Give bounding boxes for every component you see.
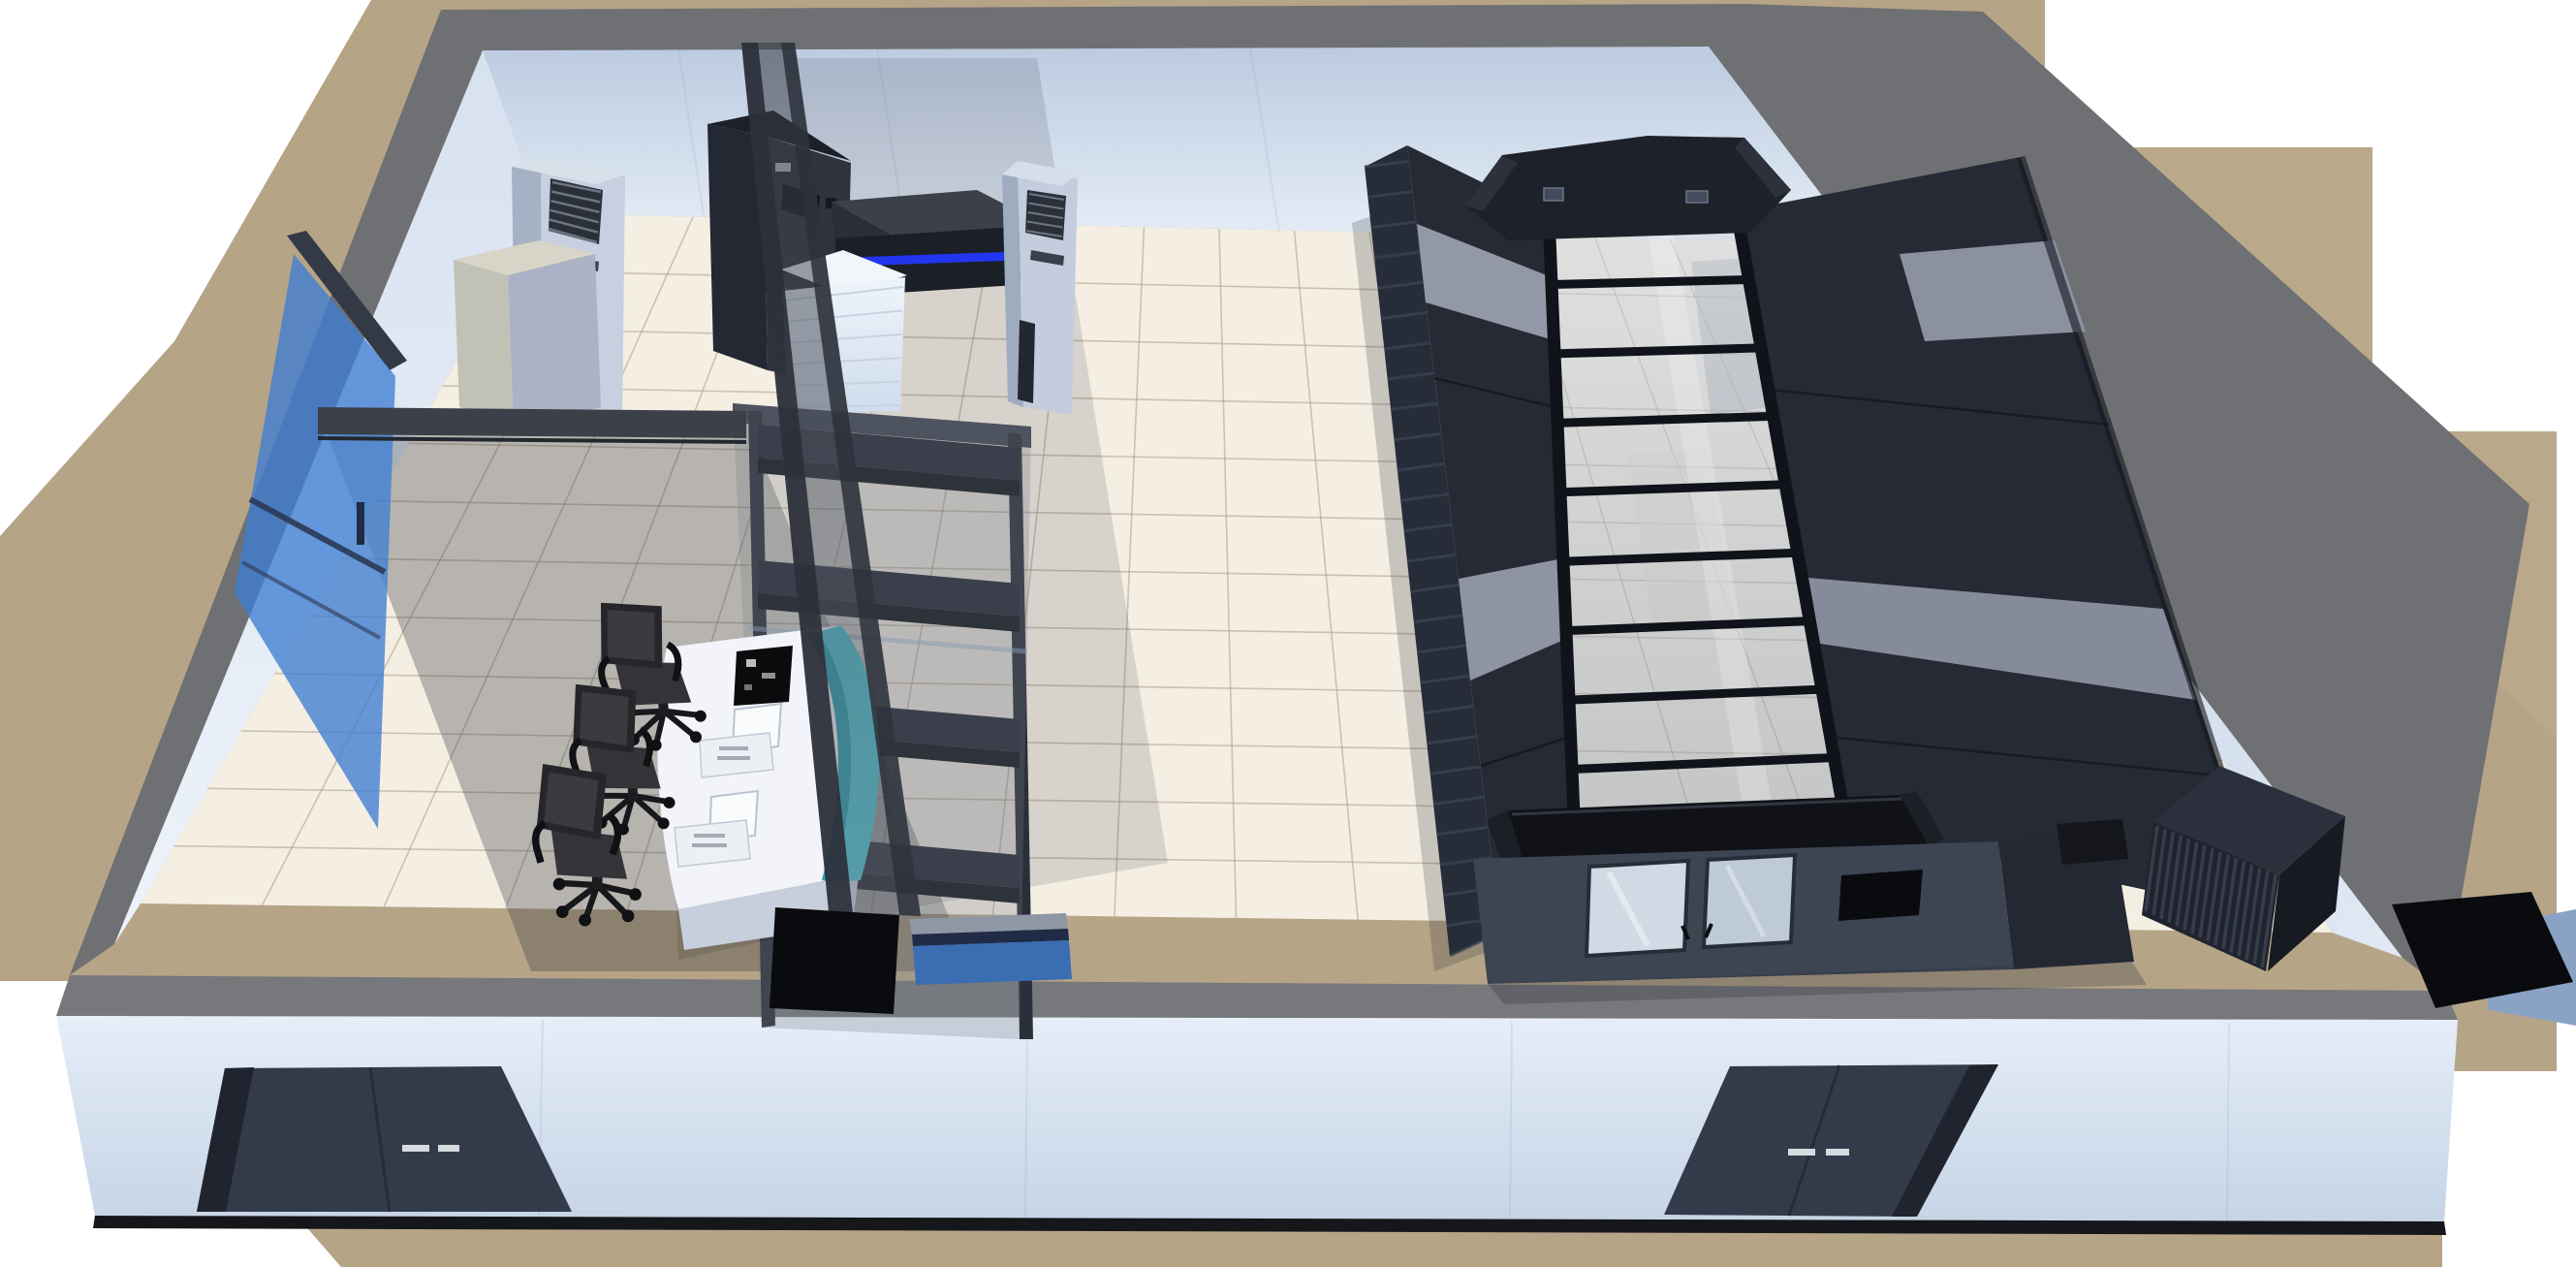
door-handle[interactable] — [438, 1145, 459, 1152]
aisle-side-panel — [2057, 819, 2128, 865]
keyboard-keys — [719, 746, 748, 750]
blue-low-cabinet[interactable] — [909, 913, 1072, 985]
roof-transverse-bar — [1552, 279, 1749, 284]
screen-glyph — [762, 673, 775, 679]
workstation-monitor[interactable] — [734, 646, 793, 706]
precision-ac-unit-2[interactable] — [1002, 161, 1080, 415]
aisle-sliding-door[interactable] — [1704, 855, 1795, 947]
back-wall-top-band — [441, 4, 1744, 50]
roof-transverse-bar — [1555, 348, 1761, 354]
keyboard-keys — [692, 843, 727, 847]
keyboard — [700, 733, 773, 777]
aisle-sliding-door[interactable] — [1586, 861, 1688, 956]
rack-top-light-unit — [1900, 240, 2086, 341]
front-wall — [56, 1016, 2458, 1235]
screen-glyph — [746, 659, 756, 667]
screen-glyph — [744, 684, 752, 690]
glass-wall-beam — [318, 407, 746, 438]
keyboard-keys — [717, 756, 750, 760]
aisle-end-display[interactable] — [1838, 870, 1923, 921]
door-handle[interactable] — [402, 1145, 429, 1152]
sliding-door-glass — [1586, 861, 1688, 956]
render-stage — [0, 0, 2576, 1267]
keyboard-keys — [694, 834, 725, 838]
sliding-door-glass — [1704, 855, 1795, 947]
door-handle[interactable] — [1788, 1149, 1815, 1156]
datacenter-3d-scene — [0, 0, 2576, 1267]
cabinet-front — [913, 940, 1072, 985]
canopy-sign — [1686, 191, 1708, 203]
cabinet-front — [508, 254, 601, 428]
door-handle[interactable] — [357, 502, 364, 545]
cabinet-side — [454, 260, 514, 428]
partition-foot — [770, 907, 899, 1014]
door-handle[interactable] — [1826, 1149, 1849, 1156]
beige-cabinet[interactable] — [454, 240, 601, 428]
ac-lower-vent — [1018, 320, 1035, 403]
canopy-sign — [1544, 188, 1563, 201]
